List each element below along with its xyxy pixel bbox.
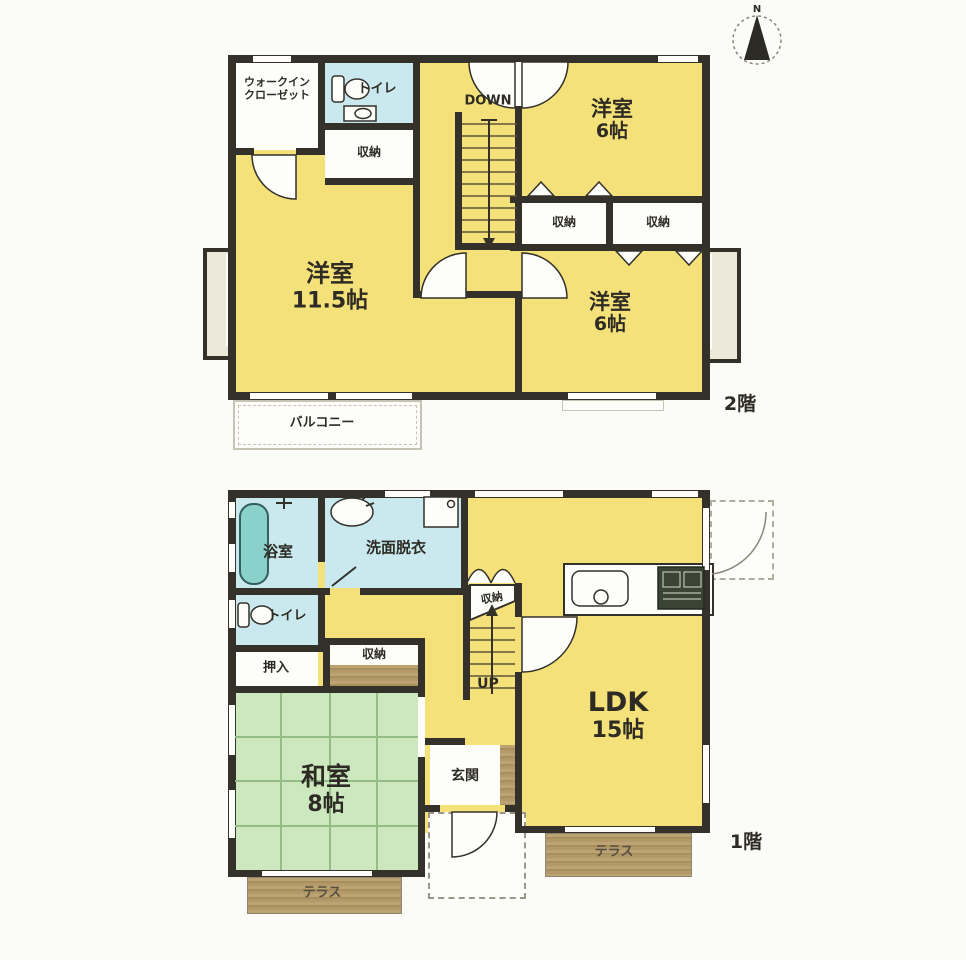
f2-stairs-down-label: DOWN <box>464 95 511 110</box>
kitchen-sink-icon <box>572 571 628 606</box>
f1-terrace-east-label: テラス <box>595 846 634 861</box>
f2-storage-a-label: 収納 <box>357 146 381 160</box>
compass-north-label: N <box>753 4 761 15</box>
f1-genkan-label: 玄関 <box>451 768 479 784</box>
washroom-door-leaf <box>332 567 356 586</box>
room-name: 洋室 <box>306 260 354 288</box>
room-name: 和室 <box>301 762 351 791</box>
floorplan-canvas: N <box>0 0 966 960</box>
room-size: 6帖 <box>591 121 633 143</box>
sink-icon <box>331 494 374 526</box>
f2-storage-c-label: 収納 <box>646 216 670 230</box>
f2-toilet-label: トイレ <box>357 83 396 98</box>
f1-washitsu-label: 和室 8帖 <box>301 763 351 817</box>
f2-walkin-closet-label: ウォークイン クローゼット <box>244 76 310 101</box>
washer-icon <box>424 497 458 527</box>
back-door-arc <box>712 512 766 574</box>
f2-bedroom-main-label: 洋室 11.5帖 <box>292 261 368 314</box>
room-name: 洋室 <box>591 97 633 121</box>
stove-icon <box>658 567 704 609</box>
f2-wic-line2: クローゼット <box>244 88 310 101</box>
room-size: 6帖 <box>589 314 631 336</box>
vector-details: N <box>0 0 966 960</box>
compass-icon: N <box>733 4 781 64</box>
f2-balcony-label: バルコニー <box>290 417 355 432</box>
f2-storage-b-label: 収納 <box>552 216 576 230</box>
door-arc <box>452 617 577 857</box>
room-size: 11.5帖 <box>292 288 368 313</box>
f2-stairs <box>462 120 517 249</box>
f1-oshiire-label: 押入 <box>263 662 289 677</box>
room-name: 洋室 <box>589 290 631 314</box>
f1-toilet-label: トイレ <box>267 610 306 625</box>
f2-floor-label: 2階 <box>724 394 756 416</box>
f2-wic-line1: ウォークイン <box>244 75 310 88</box>
bathtub-icon <box>240 497 292 584</box>
f1-floor-label: 1階 <box>730 832 762 854</box>
room-size: 15帖 <box>588 718 649 743</box>
f1-washroom-label: 洗面脱衣 <box>366 539 426 556</box>
f2-bedroom-ne-label: 洋室 6帖 <box>591 97 633 143</box>
f1-bath-label: 浴室 <box>263 543 293 560</box>
f2-bedroom-se-label: 洋室 6帖 <box>589 290 631 336</box>
room-size: 8帖 <box>301 792 351 817</box>
f1-terrace-south-label: テラス <box>303 887 342 902</box>
f1-storage-label: 収納 <box>362 648 386 662</box>
room-name: LDK <box>588 687 649 718</box>
f1-ldk-label: LDK 15帖 <box>588 687 649 743</box>
f1-stairs-up-label: UP <box>477 676 499 692</box>
